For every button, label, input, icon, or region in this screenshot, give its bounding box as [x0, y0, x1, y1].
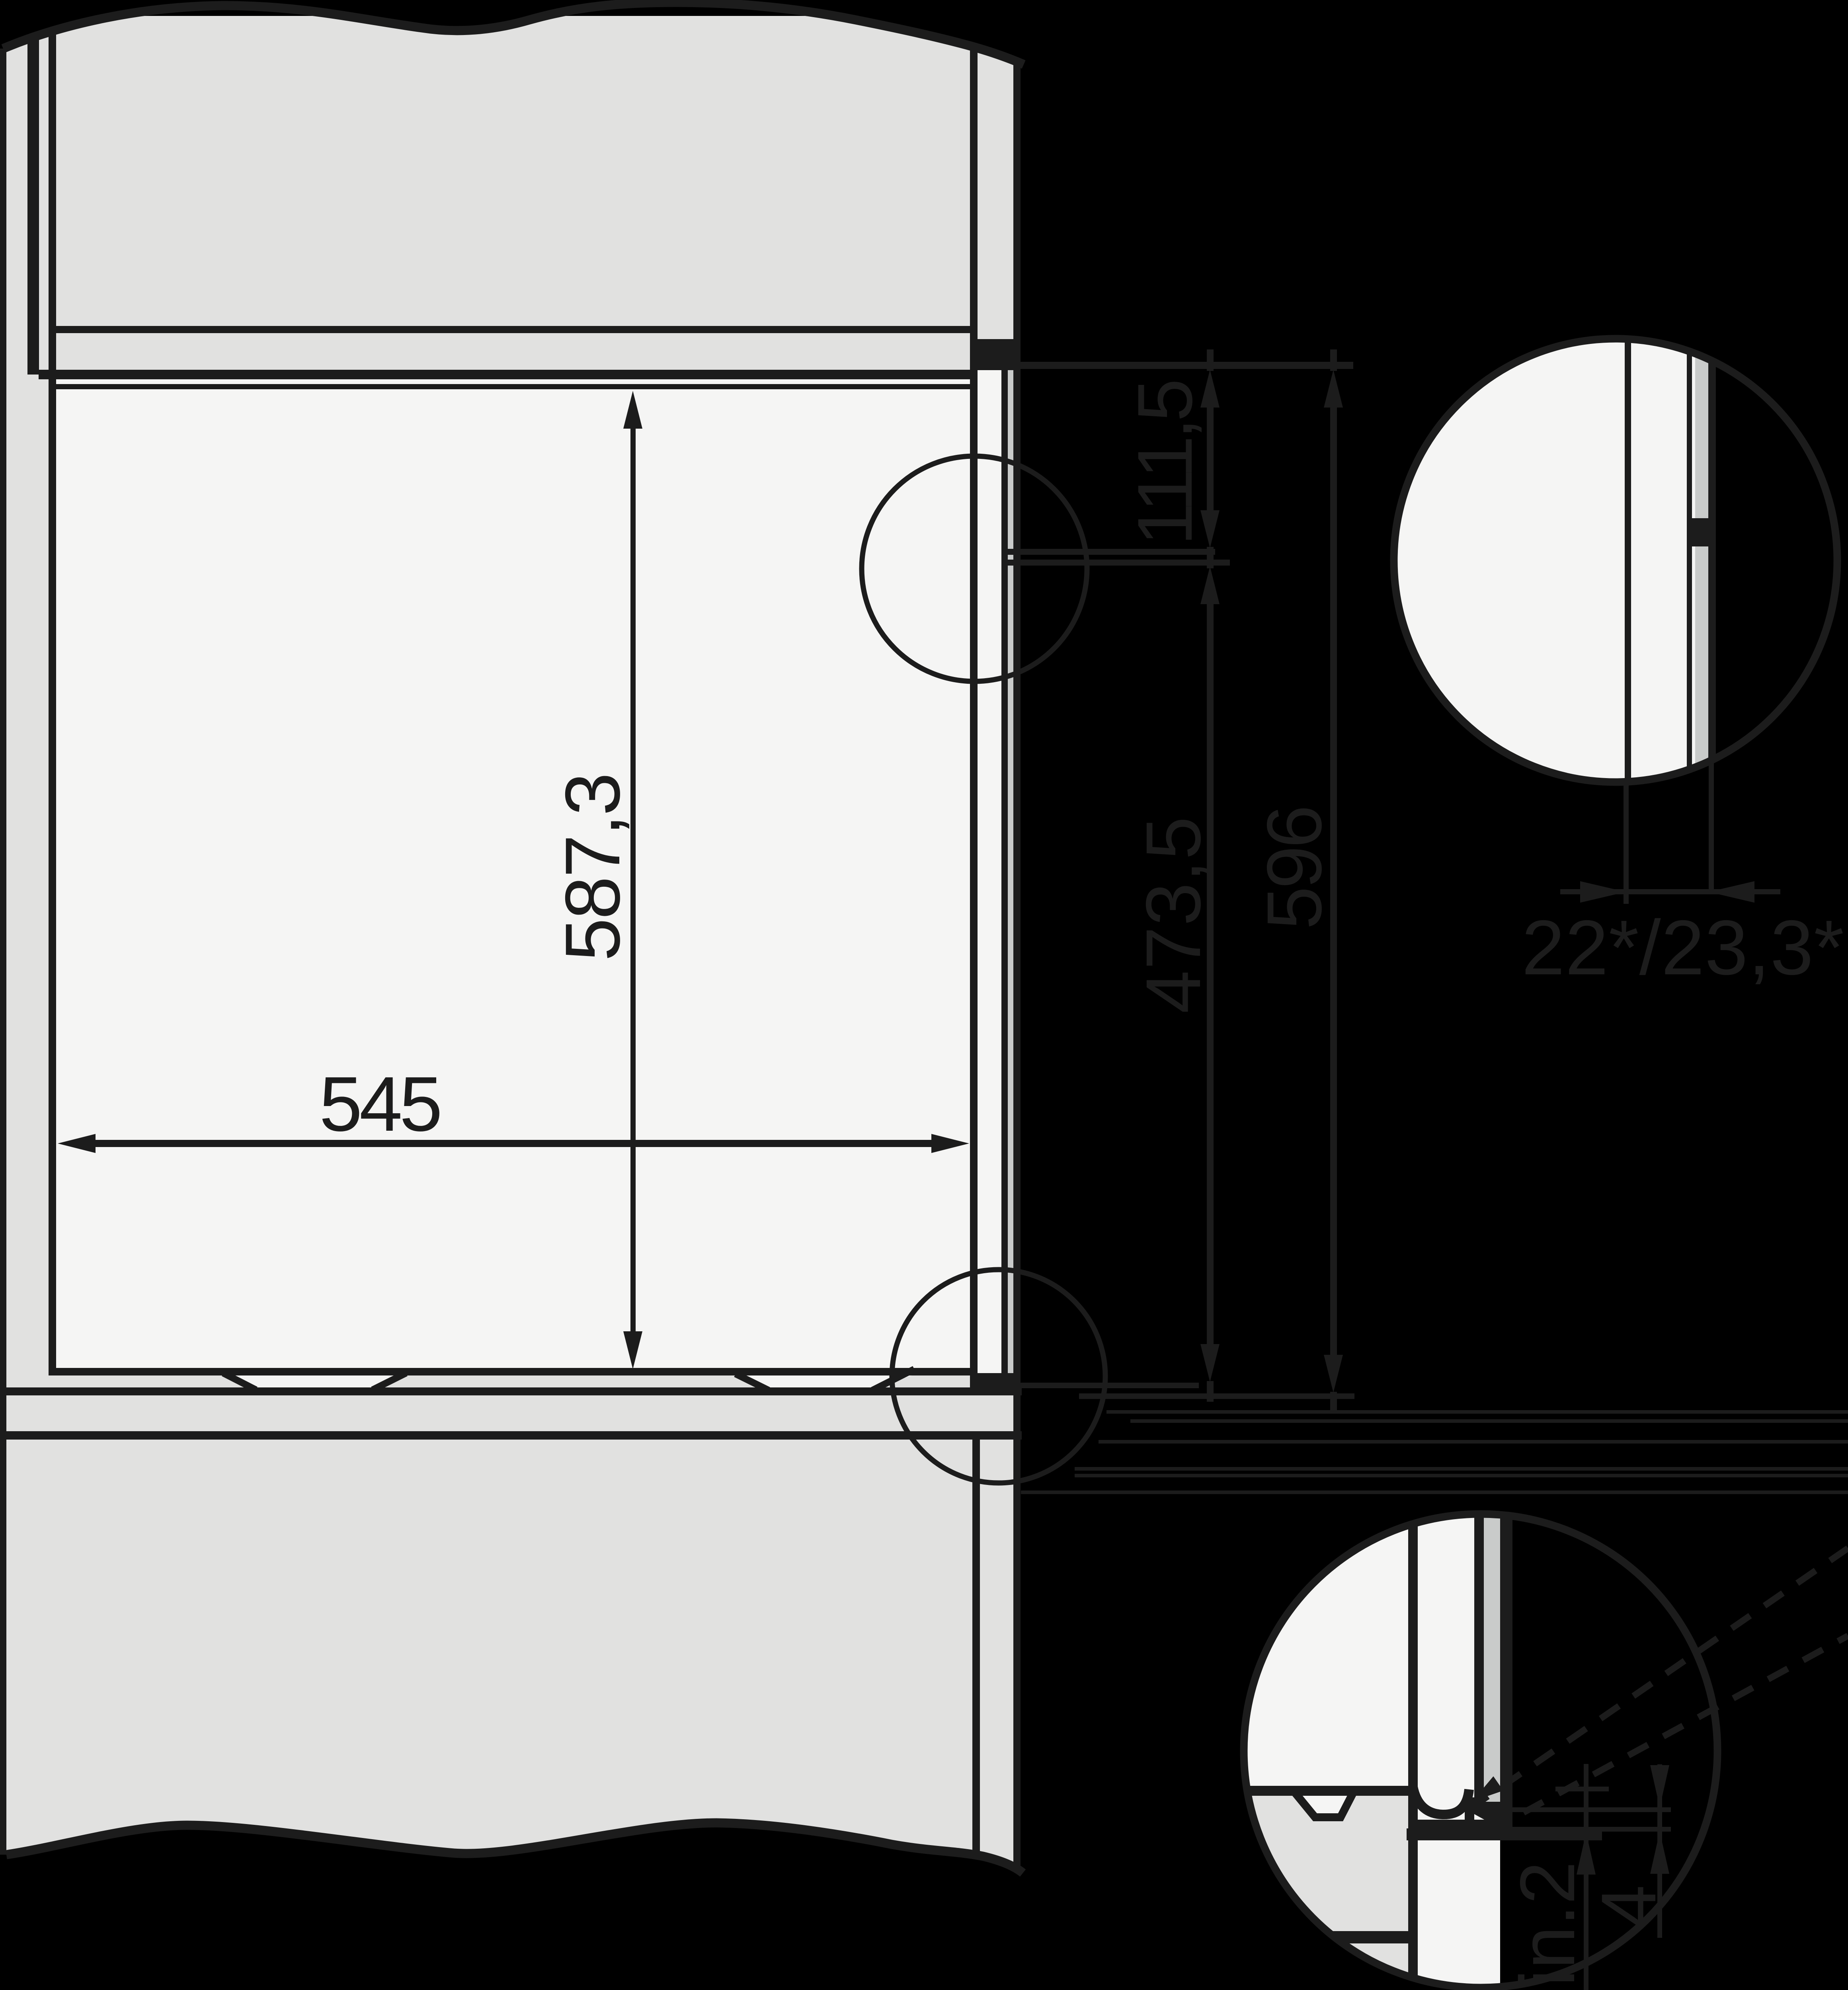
svg-text:min.2: min.2	[1504, 1861, 1591, 1990]
svg-text:587,3: 587,3	[549, 773, 636, 961]
svg-text:545: 545	[319, 1061, 443, 1147]
svg-text:473,5: 473,5	[1130, 817, 1217, 1014]
svg-text:596: 596	[1251, 805, 1338, 930]
svg-text:111,5: 111,5	[1122, 378, 1208, 546]
svg-text:4: 4	[1585, 1885, 1672, 1928]
svg-text:22*/23,3*: 22*/23,3*	[1522, 904, 1844, 991]
